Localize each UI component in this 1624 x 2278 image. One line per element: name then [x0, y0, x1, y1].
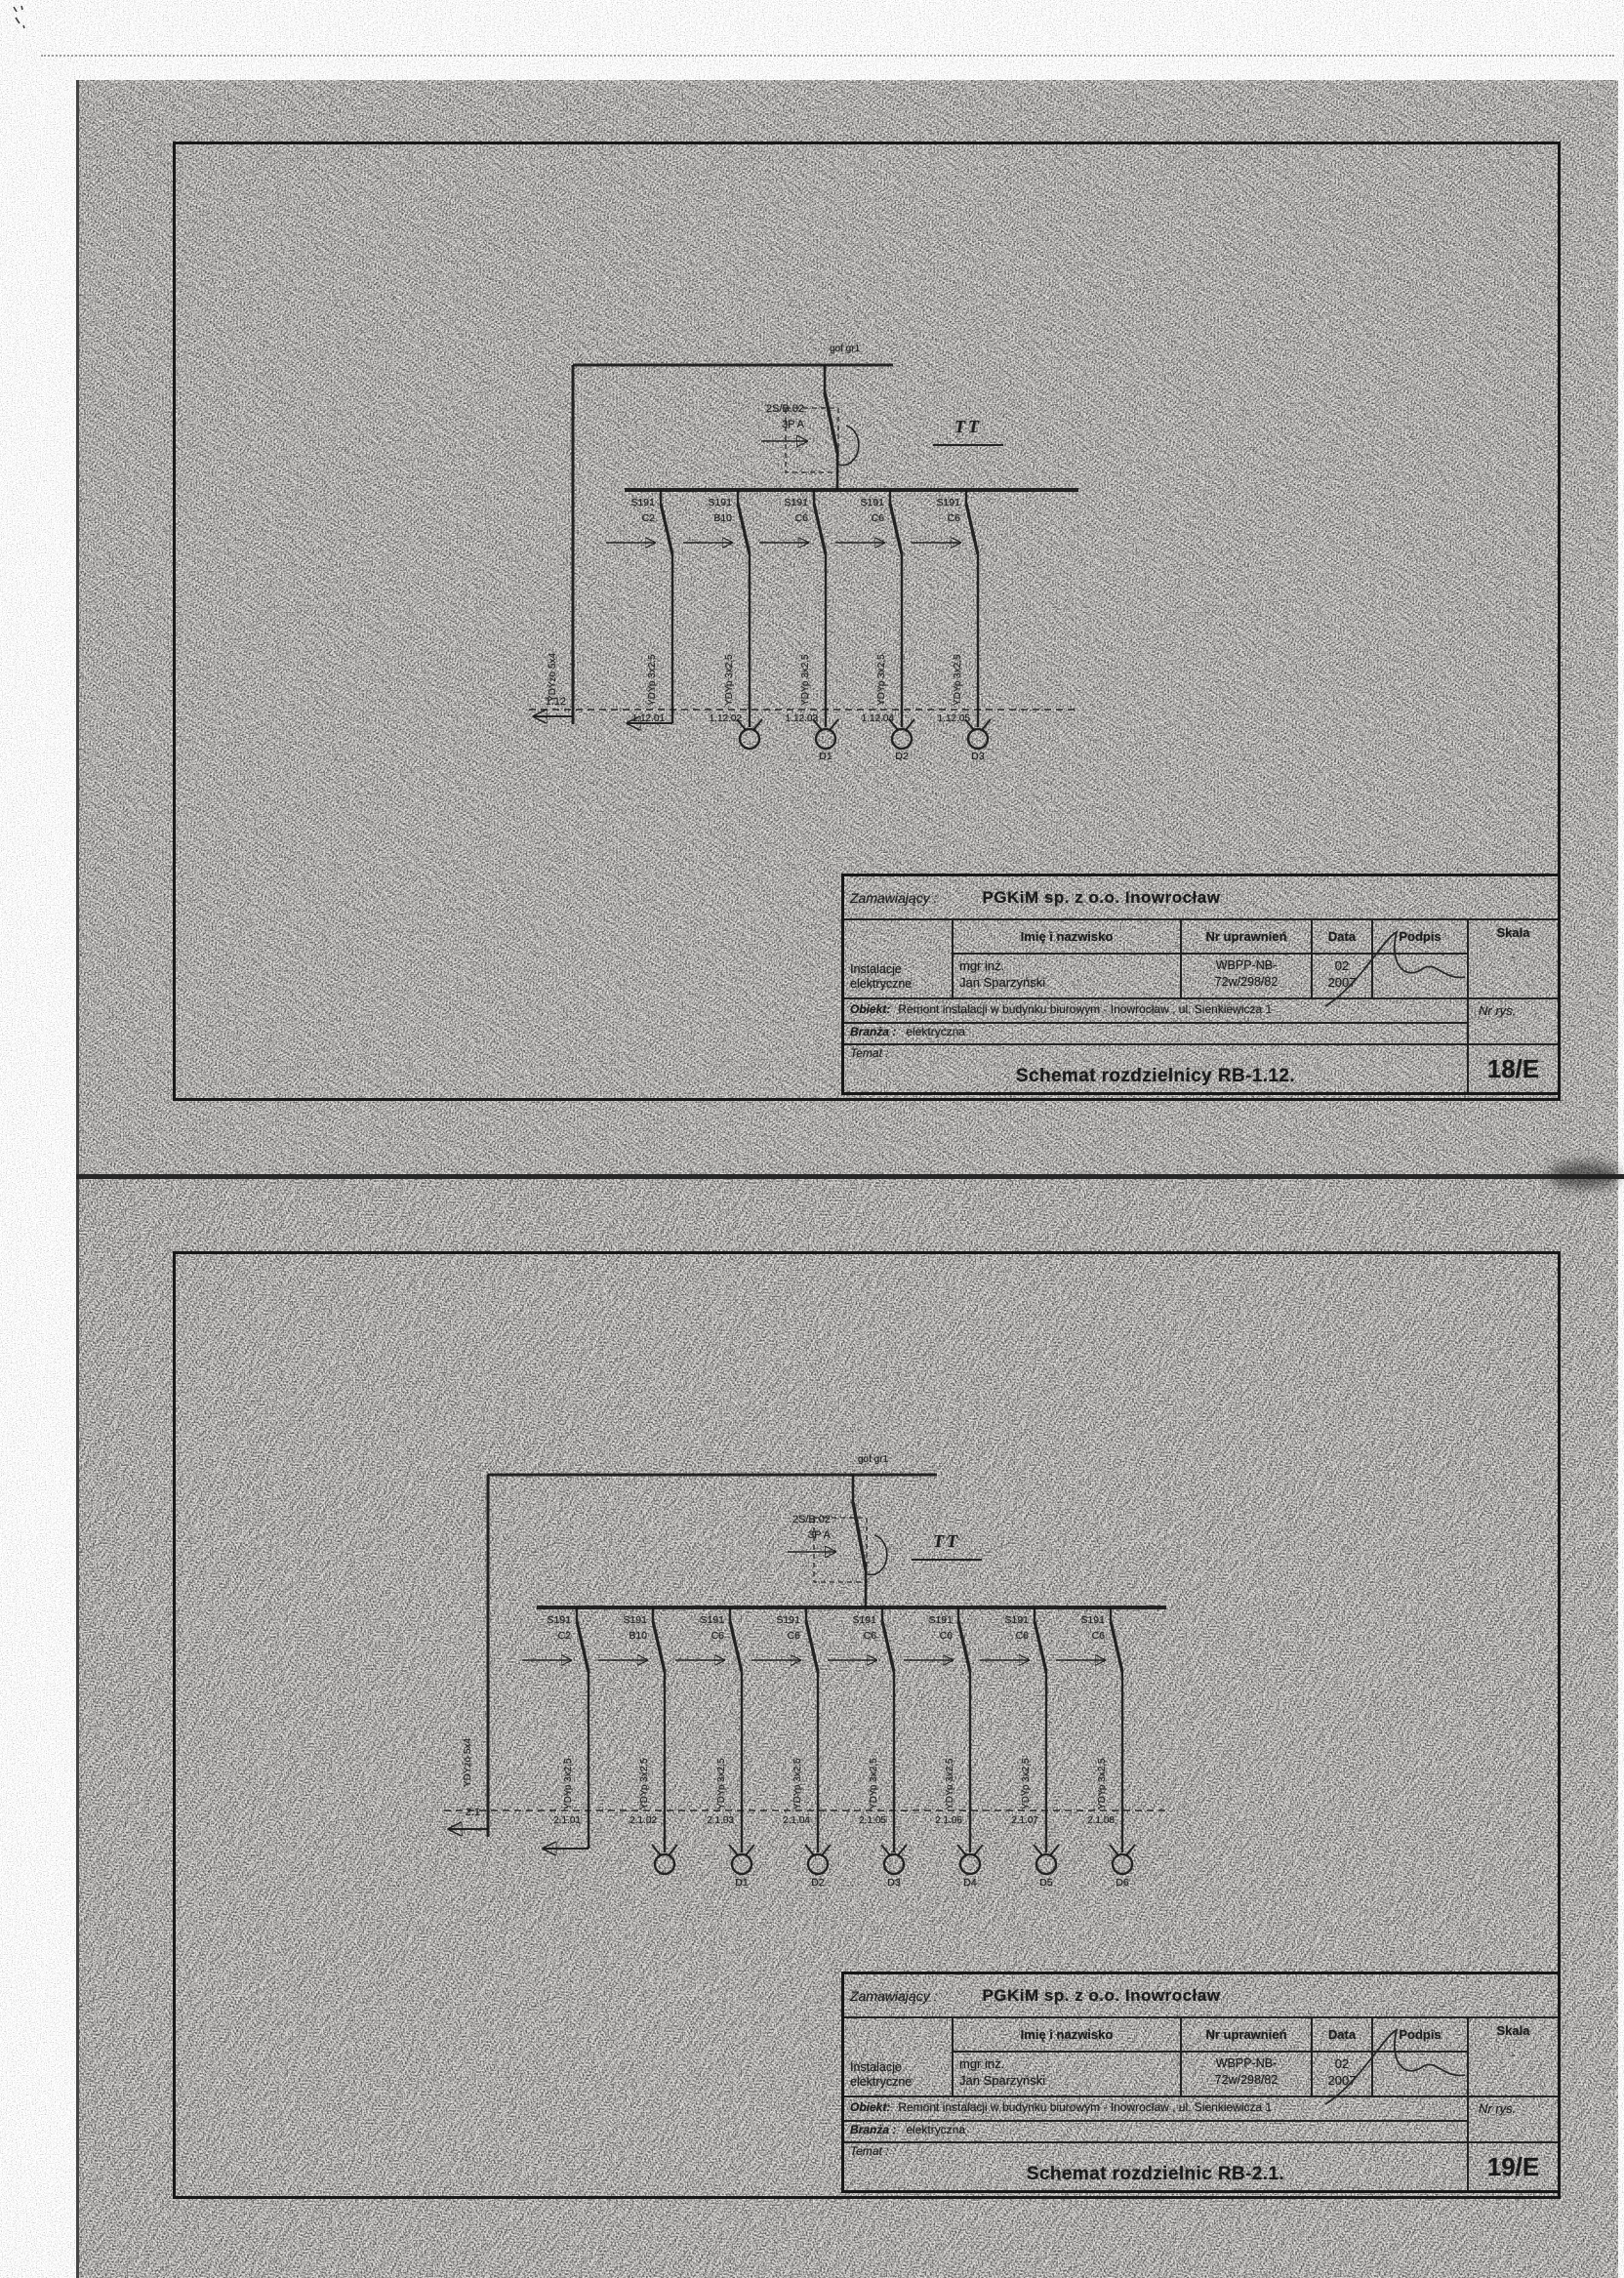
lamp-group-label: D3 [958, 752, 997, 762]
branch-breaker-blade [730, 1621, 742, 1672]
scanned-page: Zamawiający : PGKiM sp. z o.o. Inowrocła… [0, 0, 1624, 2278]
branch-breaker-blade [806, 1621, 818, 1672]
lamp-symbol [655, 1854, 674, 1874]
object-row: Obiekt:Remont instalacji w budynku biuro… [844, 997, 1467, 1022]
role-cell: Instalacje elektryczne [844, 2016, 952, 2095]
branch-value: elektryczna [906, 2123, 965, 2136]
person-name: Jan Sparzyński [959, 974, 1174, 991]
lamp-symbol [740, 729, 759, 749]
lamp-symbol [732, 1854, 751, 1874]
col-header-date: Data [1311, 918, 1371, 953]
lamp-prong [652, 1845, 661, 1855]
branch-label: Branża : [850, 1025, 896, 1038]
branch-cable-label: YDYp 3x2,5 [800, 654, 811, 706]
branch-cable-label: YDYp 3x2,5 [639, 1758, 650, 1810]
branch-cable-label: YDYp 3x2,5 [647, 654, 658, 706]
lamp-group-label: D4 [951, 1878, 990, 1889]
riser-circuit-label: 1.12 [517, 697, 566, 708]
branch-breaker-rating: C6 [820, 1631, 876, 1642]
branch-circuit-number: 1.12.04 [837, 713, 894, 724]
person-cell: mgr inż. Jan Sparzyński [952, 2051, 1180, 2095]
lamp-symbol [816, 729, 835, 749]
branch-breaker-rating: C2 [598, 513, 655, 524]
branch-breaker-name: S191 [972, 1615, 1029, 1626]
date-month: 02 [1319, 2055, 1365, 2072]
branch-breaker-name: S191 [904, 498, 960, 508]
lamp-group-label: D5 [1027, 1878, 1066, 1889]
drawing-no-label-cell: Nr rys. [1467, 997, 1558, 1043]
client-row: Zamawiający : PGKiM sp. z o.o. Inowrocła… [844, 876, 1558, 918]
scale-header: Skala [1475, 925, 1552, 940]
branch-cable-label: YDYp 3x2,5 [869, 1758, 879, 1810]
sheet-number: 19/E [1467, 2141, 1558, 2190]
main-breaker-blade [853, 1502, 866, 1570]
license-line1: WBPP-NB- [1188, 2055, 1305, 2072]
scale-cell: Skala - [1467, 918, 1558, 997]
main-breaker-label-line2: 3P A [752, 1530, 831, 1541]
branch-breaker-name: S191 [668, 1615, 724, 1626]
col-header-name: Imię i nazwisko [952, 918, 1180, 953]
license-line1: WBPP-NB- [1188, 957, 1305, 974]
riser-cable-label: YDYżo 5x4 [463, 1738, 473, 1787]
main-breaker-blade [825, 392, 837, 453]
branch-breaker-rating: C6 [1048, 1631, 1105, 1642]
date-cell: 02 2007 [1311, 953, 1371, 997]
scale-header: Skala [1475, 2023, 1552, 2038]
branch-breaker-name: S191 [675, 498, 732, 508]
lamp-prong [881, 1845, 890, 1855]
signature-cell [1371, 953, 1467, 997]
main-breaker-release-arc [868, 1535, 887, 1574]
object-value: Remont instalacji w budynku biurowym - I… [898, 2100, 1272, 2114]
branch-label: Branża : [850, 2123, 896, 2136]
lamp-prong [898, 1845, 907, 1855]
branch-circuit-number: 2.1.05 [830, 1815, 886, 1826]
lamp-prong [805, 1845, 814, 1855]
main-breaker-label-line2: 3P A [726, 420, 804, 430]
branch-breaker-blade [661, 504, 672, 554]
branch-breaker-name: S191 [828, 498, 884, 508]
branch-breaker-name: S191 [1048, 1615, 1105, 1626]
scale-cell: Skala - [1467, 2016, 1558, 2095]
branch-breaker-rating: C6 [828, 513, 884, 524]
role-line2: elektryczne [850, 977, 946, 992]
lamp-group-label: D6 [1103, 1878, 1142, 1889]
branch-breaker-rating: C6 [896, 1631, 953, 1642]
branch-cable-label: YDYp 3x2,5 [716, 1758, 727, 1810]
client-label: Zamawiający : [850, 1988, 937, 2004]
subject-label: Temat : [850, 2144, 1461, 2158]
person-title: mgr inż. [959, 957, 1174, 974]
license-line2: 72w/298/82 [1188, 974, 1305, 991]
lamp-prong [669, 1845, 677, 1855]
lamp-symbol [1113, 1854, 1132, 1874]
branch-breaker-blade [882, 1621, 894, 1672]
lamp-prong [957, 1845, 966, 1855]
object-value: Remont instalacji w budynku biurowym - I… [898, 1002, 1272, 1016]
branch-row: Branża :elektryczna [844, 1022, 1467, 1043]
lamp-symbol [968, 729, 988, 749]
branch-breaker-rating: C6 [972, 1631, 1029, 1642]
client-row: Zamawiający : PGKiM sp. z o.o. Inowrocła… [844, 1974, 1558, 2016]
branch-breaker-blade [890, 504, 902, 554]
person-cell: mgr inż. Jan Sparzyński [952, 953, 1180, 997]
branch-breaker-rating: C6 [744, 1631, 800, 1642]
object-row: Obiekt:Remont instalacji w budynku biuro… [844, 2095, 1467, 2120]
col-header-name: Imię i nazwisko [952, 2016, 1180, 2051]
drawing-title: Schemat rozdzielnic RB-2.1. [850, 2164, 1461, 2185]
branch-breaker-rating: C6 [668, 1631, 724, 1642]
branch-breaker-name: S191 [598, 498, 655, 508]
lamp-group-label: D2 [798, 1878, 837, 1889]
branch-cable-label: YDYp 3x2,5 [1097, 1758, 1108, 1810]
signature-scribble [1379, 2054, 1475, 2098]
sheet-number: 18/E [1467, 1043, 1558, 1092]
col-header-date: Data [1311, 2016, 1371, 2051]
client-value: PGKiM sp. z o.o. Inowrocław [982, 888, 1220, 908]
branch-cable-label: YDYp 3x2,5 [563, 1758, 574, 1810]
lamp-group-label: D1 [722, 1878, 761, 1889]
col-header-signature: Podpis [1371, 2016, 1467, 2051]
scale-value: - [1475, 950, 1552, 963]
branch-breaker-blade [1111, 1621, 1122, 1672]
branch-breaker-blade [653, 1621, 665, 1672]
branch-row: Branża :elektryczna [844, 2120, 1467, 2141]
role-line2: elektryczne [850, 2075, 946, 2090]
branch-cable-label: YDYp 3x2,5 [724, 654, 735, 706]
lamp-prong [822, 1845, 831, 1855]
subject-row: Temat : Schemat rozdzielnic RB-2.1. [844, 2141, 1467, 2190]
person-name: Jan Sparzyński [959, 2072, 1174, 2089]
license-cell: WBPP-NB- 72w/298/82 [1180, 953, 1311, 997]
branch-circuit-number: 2.1.01 [524, 1815, 581, 1826]
supply-cable-label: gof gr1 [830, 344, 860, 354]
scale-value: - [1475, 2048, 1552, 2061]
lamp-group-label: D1 [806, 752, 845, 762]
drawing-no-label-cell: Nr rys. [1467, 2095, 1558, 2141]
branch-breaker-rating: C2 [514, 1631, 571, 1642]
lamp-group-label: D3 [874, 1878, 913, 1889]
branch-circuit-number: 1.12.01 [608, 713, 665, 724]
branch-breaker-name: S191 [896, 1615, 953, 1626]
title-block-2: Zamawiający : PGKiM sp. z o.o. Inowrocła… [841, 1972, 1561, 2193]
role-line1: Instalacje [850, 962, 946, 977]
branch-cable-label: YDYp 3x2,5 [945, 1758, 955, 1810]
client-label: Zamawiający : [850, 890, 937, 906]
branch-breaker-name: S191 [590, 1615, 647, 1626]
branch-value: elektryczna [906, 1025, 965, 1038]
schematic-linework [0, 0, 1624, 2278]
lamp-prong [1110, 1845, 1118, 1855]
lamp-group-label: D2 [882, 752, 921, 762]
lamp-prong [1034, 1845, 1042, 1855]
date-cell: 02 2007 [1311, 2051, 1371, 2095]
branch-breaker-rating: B10 [675, 513, 732, 524]
branch-breaker-blade [814, 504, 826, 554]
signature-cell [1371, 2051, 1467, 2095]
title-block-1: Zamawiający : PGKiM sp. z o.o. Inowrocła… [841, 874, 1561, 1095]
branch-breaker-name: S191 [751, 498, 808, 508]
lamp-prong [729, 1845, 738, 1855]
object-label: Obiekt: [850, 1002, 890, 1016]
license-line2: 72w/298/82 [1188, 2072, 1305, 2089]
earthing-system-label: TT [933, 422, 1003, 432]
branch-breaker-name: S191 [514, 1615, 571, 1626]
riser-cable-label: YDYżo 5x4 [548, 653, 558, 702]
main-breaker-label-line1: 2S/B.02 [752, 1515, 831, 1525]
branch-breaker-blade [1035, 1621, 1046, 1672]
supply-cable-label: gof gr1 [858, 1454, 888, 1465]
object-label: Obiekt: [850, 2100, 890, 2114]
branch-cable-label: YDYp 3x2,5 [876, 654, 887, 706]
main-breaker-label-line1: 2S/B.02 [726, 404, 804, 415]
branch-circuit-number: 1.12.02 [685, 713, 742, 724]
branch-circuit-number: 2.1.03 [677, 1815, 734, 1826]
lamp-symbol [884, 1854, 904, 1874]
branch-circuit-number: 2.1.07 [982, 1815, 1038, 1826]
branch-breaker-blade [958, 1621, 970, 1672]
col-header-license: Nr uprawnień [1180, 918, 1311, 953]
lamp-symbol [1036, 1854, 1056, 1874]
branch-breaker-rating: B10 [590, 1631, 647, 1642]
client-value: PGKiM sp. z o.o. Inowrocław [982, 1986, 1220, 2006]
branch-circuit-number: 1.12.03 [761, 713, 818, 724]
branch-breaker-blade [738, 504, 750, 554]
col-header-signature: Podpis [1371, 918, 1467, 953]
branch-circuit-number: 2.1.06 [906, 1815, 962, 1826]
signature-scribble [1379, 956, 1475, 1000]
date-month: 02 [1319, 957, 1365, 974]
riser-circuit-label: 2.1 [431, 1808, 480, 1818]
lamp-prong [1126, 1845, 1135, 1855]
lamp-symbol [960, 1854, 980, 1874]
branch-breaker-name: S191 [744, 1615, 800, 1626]
lamp-prong [1050, 1845, 1059, 1855]
branch-breaker-blade [577, 1621, 589, 1672]
person-title: mgr inż. [959, 2055, 1174, 2072]
branch-circuit-number: 2.1.04 [753, 1815, 810, 1826]
branch-circuit-number: 1.12.05 [913, 713, 970, 724]
branch-cable-label: YDYp 3x2,5 [953, 654, 963, 706]
lamp-prong [974, 1845, 983, 1855]
branch-breaker-name: S191 [820, 1615, 876, 1626]
role-cell: Instalacje elektryczne [844, 918, 952, 997]
branch-breaker-rating: C6 [904, 513, 960, 524]
subject-label: Temat : [850, 1046, 1461, 1060]
subject-row: Temat : Schemat rozdzielnicy RB-1.12. [844, 1043, 1467, 1092]
main-breaker-release-arc [839, 426, 859, 465]
col-header-license: Nr uprawnień [1180, 2016, 1311, 2051]
license-cell: WBPP-NB- 72w/298/82 [1180, 2051, 1311, 2095]
lamp-prong [746, 1845, 754, 1855]
drawing-title: Schemat rozdzielnicy RB-1.12. [850, 1066, 1461, 1087]
earthing-system-label: TT [912, 1536, 982, 1547]
lamp-symbol [808, 1854, 828, 1874]
branch-breaker-rating: C6 [751, 513, 808, 524]
branch-cable-label: YDYp 3x2,5 [1021, 1758, 1032, 1810]
branch-breaker-blade [966, 504, 978, 554]
branch-cable-label: YDYp 3x2,5 [792, 1758, 803, 1810]
role-line1: Instalacje [850, 2060, 946, 2075]
lamp-symbol [892, 729, 912, 749]
lamp-prong [982, 719, 991, 730]
branch-circuit-number: 2.1.08 [1058, 1815, 1115, 1826]
branch-circuit-number: 2.1.02 [600, 1815, 657, 1826]
